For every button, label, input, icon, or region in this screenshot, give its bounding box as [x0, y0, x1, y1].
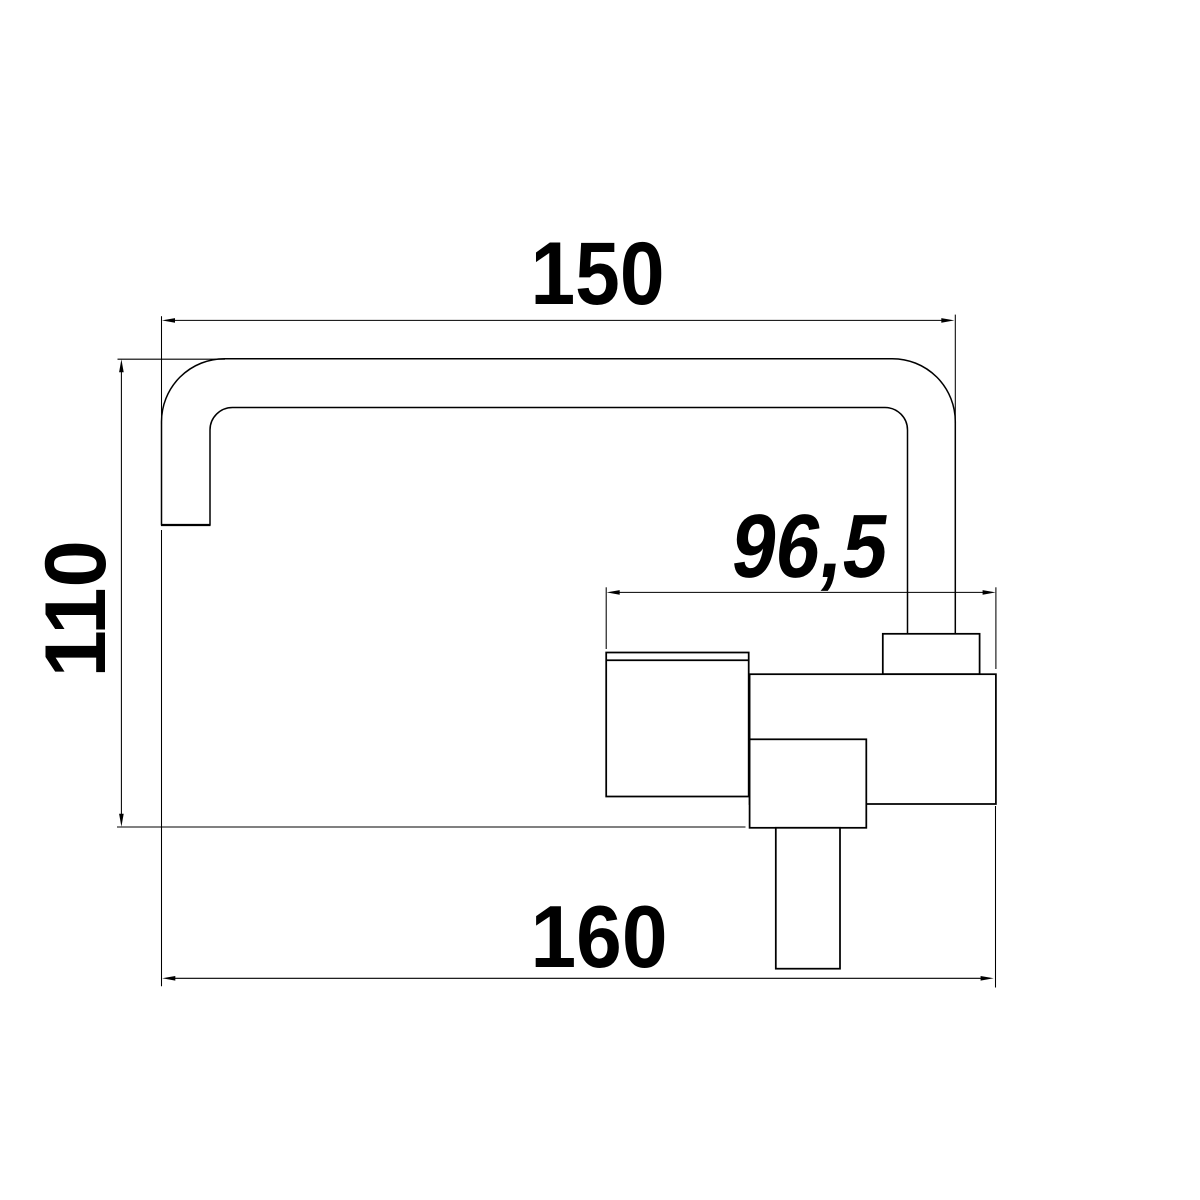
svg-text:96,5: 96,5: [726, 496, 895, 597]
svg-text:110: 110: [28, 540, 124, 678]
svg-text:150: 150: [531, 223, 665, 323]
svg-text:160: 160: [531, 887, 668, 986]
